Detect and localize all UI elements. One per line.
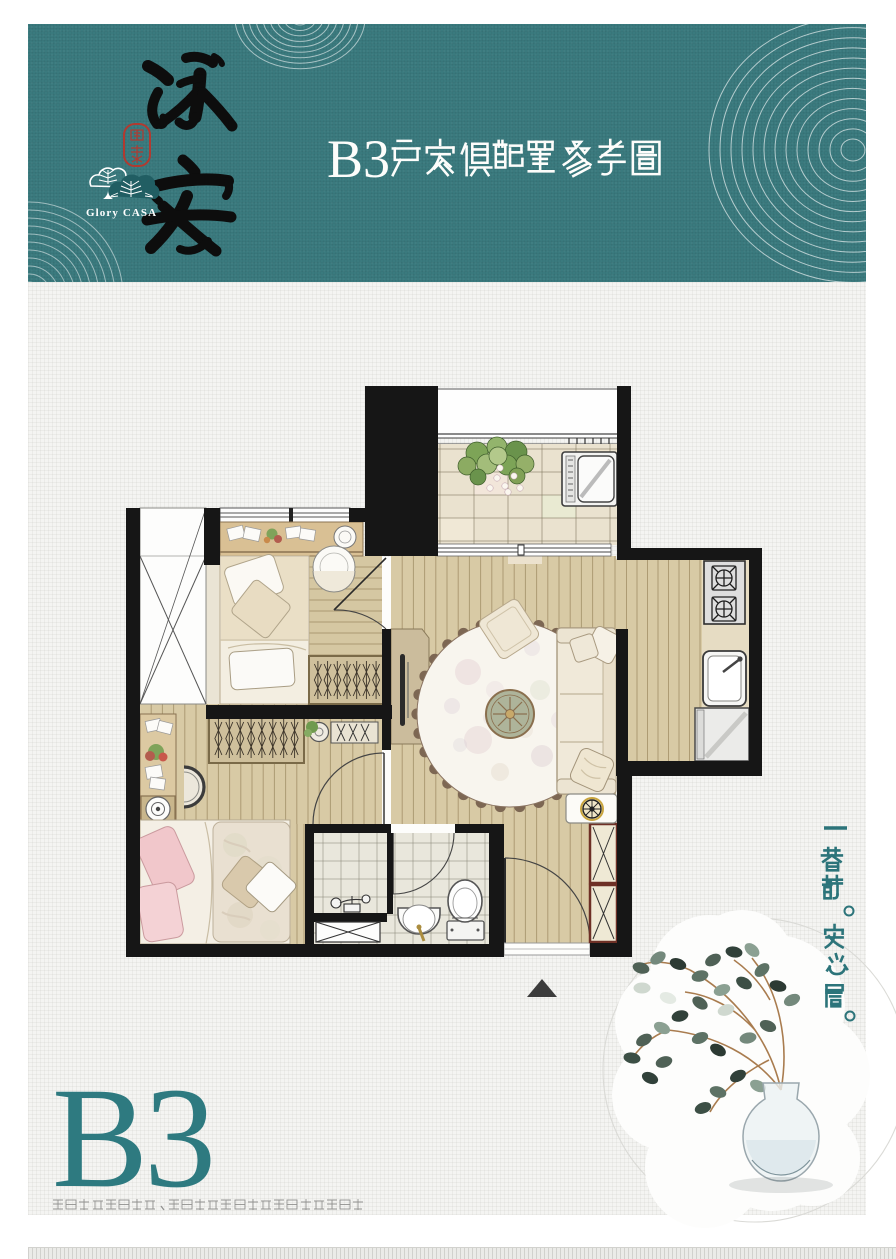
svg-text:Glory CASA: Glory CASA — [86, 207, 157, 219]
svg-text:B3: B3 — [327, 129, 390, 189]
